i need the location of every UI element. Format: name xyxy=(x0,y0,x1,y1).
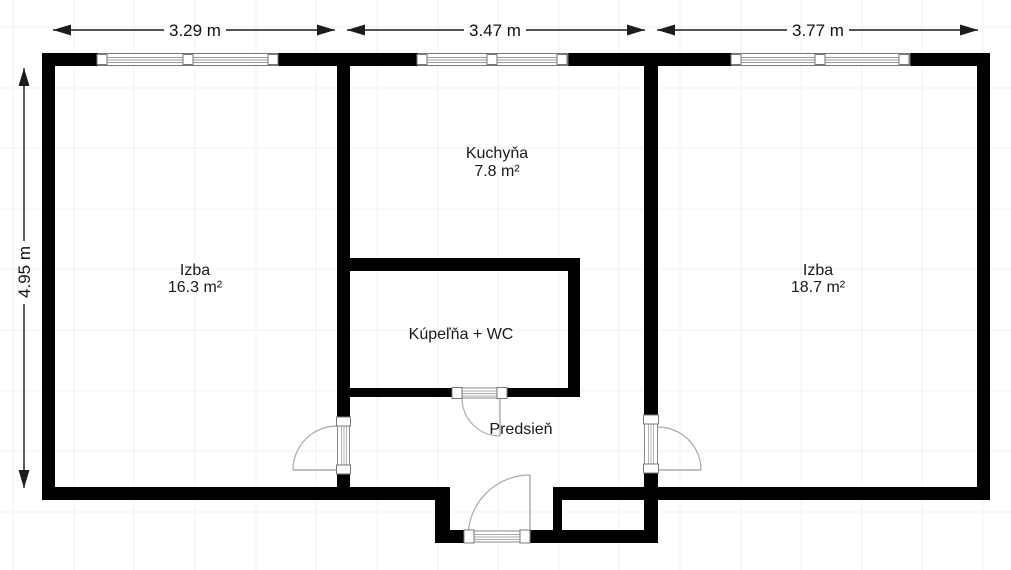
dimension-top-right: 3.77 m xyxy=(657,21,978,40)
arrow-left-icon xyxy=(657,25,675,36)
sill-cap xyxy=(644,464,659,473)
window-mullion xyxy=(731,55,741,65)
arrow-right-icon xyxy=(317,25,335,36)
sill-cap xyxy=(464,530,474,543)
wall-bathroom-bottom-right xyxy=(507,388,580,397)
window-mullion xyxy=(417,55,427,65)
room-area: 16.3 m² xyxy=(168,279,223,296)
arrow-right-icon xyxy=(960,25,978,36)
door-swing-left-room xyxy=(293,426,337,470)
dimension-top-middle: 3.47 m xyxy=(347,21,645,40)
room-name: Izba xyxy=(803,262,833,279)
dimension-left-vertical: 4.95 m xyxy=(15,68,34,488)
window-mullion xyxy=(815,55,825,65)
room-label-kupelna: Kúpeľňa + WC xyxy=(409,326,514,343)
dimension-label-top-middle: 3.47 m xyxy=(469,21,521,40)
room-label-izba-right: Izba 18.7 m² xyxy=(791,262,846,296)
sill-cap xyxy=(337,417,351,426)
wall-left-exterior xyxy=(42,53,55,500)
window-mullion xyxy=(268,55,278,65)
wall-interior-right-lower xyxy=(644,473,658,543)
door-sill-bathroom xyxy=(452,388,507,399)
door-arc xyxy=(468,475,530,537)
sill-cap xyxy=(337,465,351,474)
window-mullion xyxy=(183,55,193,65)
room-label-predsien: Predsieň xyxy=(489,421,552,438)
arrow-left-icon xyxy=(347,25,365,36)
dimension-label-top-left: 3.29 m xyxy=(169,21,221,40)
arrow-down-icon xyxy=(19,470,30,488)
windows xyxy=(97,54,910,66)
door-arc xyxy=(293,426,337,470)
sill-cap xyxy=(520,530,530,543)
sill-cap xyxy=(644,415,659,424)
dimension-label-left: 4.95 m xyxy=(15,246,34,298)
arrow-left-icon xyxy=(53,25,71,36)
room-name: Izba xyxy=(180,262,210,279)
door-sill-right-room xyxy=(644,415,659,473)
wall-entry-jamb-left xyxy=(435,530,465,543)
room-name: Kúpeľňa + WC xyxy=(409,326,514,343)
window-left-room xyxy=(97,54,278,66)
sill-cap xyxy=(497,388,507,399)
arrow-up-icon xyxy=(19,68,30,86)
room-area: 18.7 m² xyxy=(791,279,846,296)
dimension-lines: 3.29 m 3.47 m 3.77 m 4.95 m xyxy=(15,21,978,488)
dimension-label-top-right: 3.77 m xyxy=(792,21,844,40)
arrow-right-icon xyxy=(627,25,645,36)
wall-closet-top xyxy=(553,487,645,500)
background-grid xyxy=(0,0,1011,570)
wall-bathroom-bottom-left xyxy=(350,388,453,397)
wall-bathroom-right xyxy=(568,258,580,397)
walls xyxy=(42,53,990,543)
wall-interior-left-lower xyxy=(337,474,350,487)
floor-plan-svg: 3.29 m 3.47 m 3.77 m 4.95 m Izba 16.3 m² xyxy=(0,0,1011,570)
wall-entry-bottom-right xyxy=(530,530,658,543)
room-label-kuchyna: Kuchyňa 7.8 m² xyxy=(466,145,528,180)
wall-bottom-right xyxy=(658,487,990,500)
window-mullion xyxy=(97,55,107,65)
room-area: 7.8 m² xyxy=(474,163,520,180)
door-sill-left-room xyxy=(337,417,351,474)
window-right-room xyxy=(731,54,910,66)
wall-interior-right-upper xyxy=(644,66,658,415)
floor-plan-page: 3.29 m 3.47 m 3.77 m 4.95 m Izba 16.3 m² xyxy=(0,0,1011,570)
wall-bathroom-top xyxy=(350,258,580,271)
room-label-izba-left: Izba 16.3 m² xyxy=(168,262,223,296)
window-kitchen xyxy=(417,54,568,66)
dimension-top-left: 3.29 m xyxy=(53,21,335,40)
wall-interior-left-upper xyxy=(337,66,350,417)
wall-bottom-left xyxy=(42,487,450,500)
wall-closet-left xyxy=(553,487,562,530)
door-swing-entrance xyxy=(468,475,530,537)
window-mullion xyxy=(487,55,497,65)
door-swings xyxy=(293,398,701,537)
window-mullion xyxy=(899,55,909,65)
wall-right-exterior xyxy=(977,53,990,500)
room-name: Predsieň xyxy=(489,421,552,438)
room-name: Kuchyňa xyxy=(466,145,528,162)
wall-top-segment-3 xyxy=(568,53,732,66)
sill-cap xyxy=(452,388,462,399)
window-mullion xyxy=(557,55,567,65)
wall-top-segment-2 xyxy=(278,53,418,66)
door-sill-entrance xyxy=(464,530,530,543)
